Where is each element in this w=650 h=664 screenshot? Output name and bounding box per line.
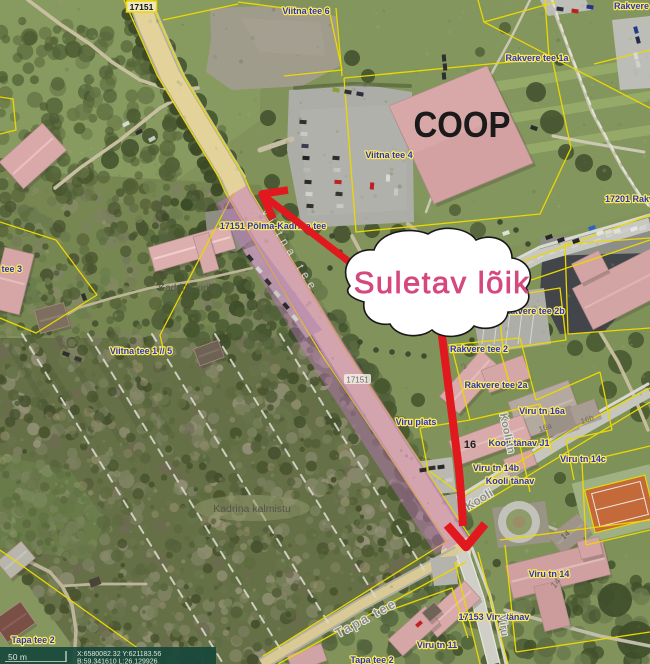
svg-text:Rakvere t: Rakvere t <box>614 1 650 11</box>
svg-text:17151: 17151 <box>130 2 154 12</box>
svg-text:Viru tn 16a: Viru tn 16a <box>519 406 566 416</box>
svg-text:tee 3: tee 3 <box>1 264 22 274</box>
svg-text:Kooli tänav: Kooli tänav <box>486 476 535 486</box>
svg-text:Viru tn 14: Viru tn 14 <box>529 569 570 579</box>
svg-text:Kadrina kirik: Kadrina kirik <box>158 283 214 294</box>
svg-text:Viitna tee 6: Viitna tee 6 <box>282 6 329 16</box>
svg-text:Viitna tee 4: Viitna tee 4 <box>365 150 412 160</box>
svg-text:Viru plats: Viru plats <box>396 417 437 427</box>
svg-text:Viru tn 14b: Viru tn 14b <box>473 463 520 473</box>
svg-text:Kooli tänav J1: Kooli tänav J1 <box>488 438 549 448</box>
svg-text:Viitna tee 1 // 5: Viitna tee 1 // 5 <box>110 346 172 356</box>
svg-text:Suletav lõik: Suletav lõik <box>354 265 531 300</box>
svg-text:Kadrina kalmistu: Kadrina kalmistu <box>213 503 291 515</box>
svg-text:X:6580082.32 Y:621183.56: X:6580082.32 Y:621183.56 <box>77 651 161 658</box>
svg-text:Tapa tee 2: Tapa tee 2 <box>350 655 393 664</box>
svg-text:Rakvere tee 2a: Rakvere tee 2a <box>464 380 528 390</box>
svg-text:17201 Rakvere: 17201 Rakvere <box>605 194 650 204</box>
svg-text:Rakvere tee 1a: Rakvere tee 1a <box>505 53 569 63</box>
svg-text:Viru tn 11: Viru tn 11 <box>417 640 457 650</box>
svg-text:17153 Viru tänav: 17153 Viru tänav <box>459 612 530 622</box>
svg-text:Tapa tee 2: Tapa tee 2 <box>11 635 54 645</box>
svg-text:Rakvere tee 2: Rakvere tee 2 <box>450 344 508 354</box>
svg-text:Viru tn 14c: Viru tn 14c <box>560 454 606 464</box>
svg-text:17151: 17151 <box>346 376 369 385</box>
svg-text:50 m: 50 m <box>8 652 27 662</box>
svg-text:16: 16 <box>464 439 476 451</box>
svg-text:B:59.341610 L:26.129926: B:59.341610 L:26.129926 <box>77 659 158 664</box>
svg-text:COOP: COOP <box>414 104 511 145</box>
